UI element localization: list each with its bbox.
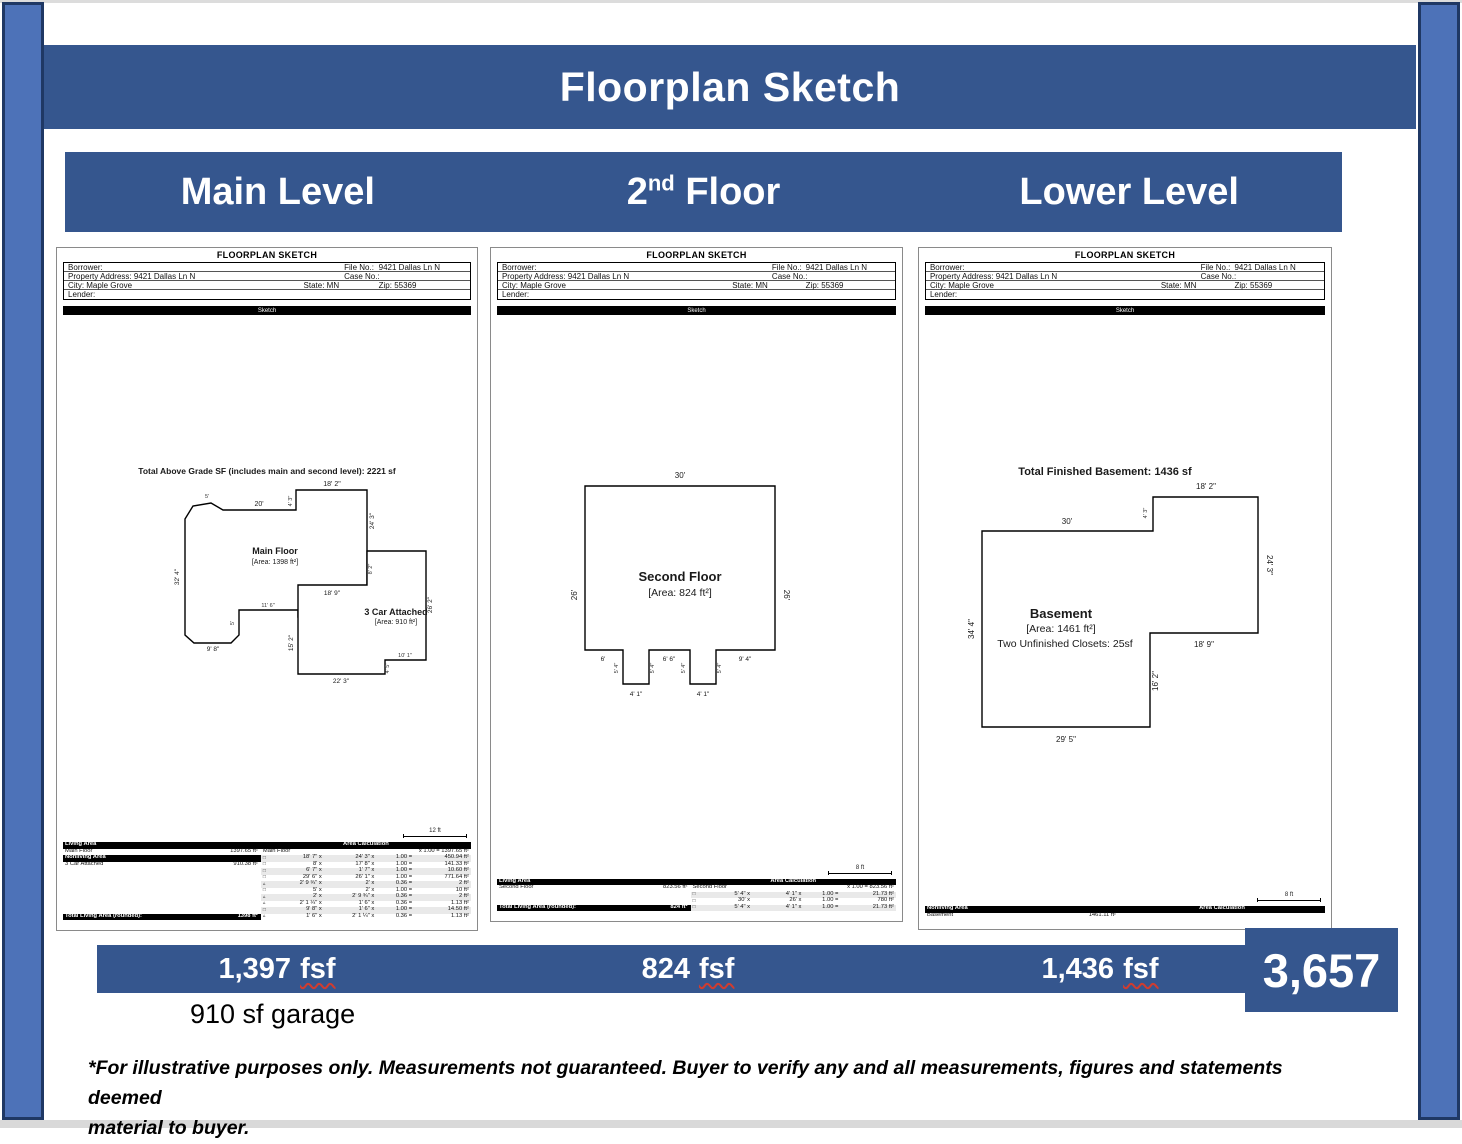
second-floor-floorplan-drawing: 30' 26' 26' Second Floor [Area: 824 ft²]… (497, 455, 897, 715)
garage-note: 910 sf garage (190, 999, 355, 1030)
svg-text:Second Floor: Second Floor (638, 569, 721, 584)
svg-text:32' 4": 32' 4" (174, 568, 181, 585)
doc-title: FLOORPLAN SKETCH (925, 250, 1325, 260)
svg-text:Main Floor: Main Floor (252, 546, 298, 556)
svg-text:5' 4": 5' 4" (681, 663, 687, 674)
checkbox-icon: □ (261, 908, 276, 913)
table-row: Basement1461.11 ft² (925, 913, 1119, 920)
total-living-area-row: Total Living Area (rounded):824 ft² (497, 905, 691, 912)
svg-text:26': 26' (570, 589, 579, 600)
sketch-section-bar: Sketch (63, 306, 471, 315)
area-calculation-table: Nonliving Area Basement1461.11 ft² Area … (925, 906, 1325, 919)
checkbox-icon: □ (691, 892, 705, 897)
sketch-section-bar: Sketch (925, 306, 1325, 315)
calc-row: □ 5' 4" x 4' 1" x 1.00 = 21.73 ft² (691, 905, 896, 912)
svg-text:4' 1": 4' 1" (630, 691, 643, 698)
lower-level-sketch-area: Total Finished Basement: 1436 sf 18' 2" … (925, 315, 1325, 919)
info-row-lender: Lender: (64, 290, 470, 299)
svg-text:11' 6": 11' 6" (261, 603, 274, 609)
svg-text:Two Unfinished Closets: 25sf: Two Unfinished Closets: 25sf (997, 638, 1132, 650)
main-level-total: 1,397fsf (218, 945, 335, 993)
svg-text:5': 5' (205, 494, 209, 500)
doc-title: FLOORPLAN SKETCH (63, 250, 471, 260)
svg-text:10' 1": 10' 1" (398, 653, 412, 659)
main-level-sketch-area: Total Above Grade SF (includes main and … (63, 315, 471, 920)
info-row-property: Property Address: 9421 Dallas Ln N Case … (926, 272, 1324, 281)
svg-text:5' 4": 5' 4" (717, 663, 723, 674)
area-calculation-table: Living Area Second Floor823.56 ft² Total… (497, 879, 896, 912)
nonliving-area-header: Nonliving Area (63, 855, 261, 862)
summary-bar: 1,397fsf 824fsf 1,436fsf (97, 945, 1245, 993)
svg-text:6': 6' (601, 656, 606, 663)
svg-text:34' 4": 34' 4" (967, 619, 976, 639)
levels-header-bar: Main Level 2nd Floor Lower Level (65, 152, 1342, 232)
second-floor-table-block: 8 ft Living Area Second Floor823.56 ft² … (497, 865, 896, 912)
svg-text:9' 8": 9' 8" (207, 646, 220, 653)
info-row-borrower: Borrower: File No.: 9421 Dallas Ln N (64, 263, 470, 272)
table-row: 3 Car Attached910.38 ft² (63, 862, 261, 869)
svg-text:[Area: 824 ft²]: [Area: 824 ft²] (648, 587, 712, 599)
disclaimer-text: *For illustrative purposes only. Measure… (88, 1053, 1328, 1144)
main-level-table-block: 12 ft Living Area Main Floor1397.65 ft² … (63, 828, 471, 920)
svg-text:9' 4": 9' 4" (739, 656, 752, 663)
table-row: Main Floor1397.65 ft² (63, 849, 261, 856)
total-living-area-row: Total Living Area (rounded):1398 ft² (63, 914, 261, 921)
svg-text:6' 6": 6' 6" (663, 656, 676, 663)
svg-text:18' 2": 18' 2" (323, 481, 341, 488)
page-title: Floorplan Sketch (560, 64, 901, 111)
checkbox-icon: ▵ (261, 914, 276, 919)
page-title-bar: Floorplan Sketch (44, 45, 1416, 129)
living-area-header: Living Area (497, 879, 691, 886)
panel-lower-level: FLOORPLAN SKETCH Borrower: File No.: 942… (918, 247, 1332, 930)
lower-level-table-block: 8 ft Nonliving Area Basement1461.11 ft² … (925, 892, 1325, 919)
info-row-lender: Lender: (498, 290, 895, 299)
svg-text:22' 3": 22' 3" (333, 678, 350, 685)
lower-level-total: 1,436fsf (1041, 945, 1158, 993)
checkbox-icon: ▵ (261, 901, 276, 906)
checkbox-icon: □ (691, 905, 705, 910)
second-floor-total: 824fsf (642, 945, 735, 993)
svg-text:30': 30' (1062, 517, 1073, 526)
info-row-city: City: Maple Grove State: MN Zip: 55369 (498, 281, 895, 290)
main-level-floorplan-drawing: Total Above Grade SF (includes main and … (63, 457, 471, 707)
property-info-table: Borrower: File No.: 9421 Dallas Ln N Pro… (63, 262, 471, 300)
svg-text:26' 2": 26' 2" (427, 596, 434, 613)
info-row-borrower: Borrower: File No.: 9421 Dallas Ln N (498, 263, 895, 272)
svg-text:Basement: Basement (1030, 606, 1093, 621)
svg-text:26': 26' (782, 590, 791, 601)
calc-rows: □ 18' 7" x 24' 3" x 1.00 = 450.94 ft² □ … (261, 855, 471, 920)
svg-text:16' 2": 16' 2" (1151, 671, 1160, 691)
panel-second-floor: FLOORPLAN SKETCH Borrower: File No.: 942… (490, 247, 903, 922)
svg-text:30': 30' (675, 471, 686, 480)
info-row-property: Property Address: 9421 Dallas Ln N Case … (498, 272, 895, 281)
checkbox-icon: □ (261, 875, 276, 880)
property-info-table: Borrower: File No.: 9421 Dallas Ln N Pro… (497, 262, 896, 300)
doc-title: FLOORPLAN SKETCH (497, 250, 896, 260)
right-blue-strip (1418, 2, 1460, 1120)
grand-total-box: 3,657 (1245, 928, 1398, 1012)
svg-text:3 Car Attached: 3 Car Attached (364, 607, 427, 617)
checkbox-icon: ▵ (261, 882, 276, 887)
info-row-city: City: Maple Grove State: MN Zip: 55369 (64, 281, 470, 290)
svg-text:4' 3": 4' 3" (1143, 508, 1149, 519)
second-floor-sketch-area: 30' 26' 26' Second Floor [Area: 824 ft²]… (497, 315, 896, 911)
svg-text:[Area: 910 ft²]: [Area: 910 ft²] (375, 619, 417, 626)
checkbox-icon: ▵ (261, 895, 276, 900)
svg-text:4' 3": 4' 3" (288, 496, 294, 507)
svg-text:[Area: 1398 ft²]: [Area: 1398 ft²] (252, 559, 298, 566)
svg-text:4' 1": 4' 1" (697, 691, 710, 698)
checkbox-icon: □ (691, 899, 705, 904)
calc-row: ▵ 1' 6" x 2' 1 ¼" x 0.36 = 1.13 ft² (261, 914, 471, 921)
second-floor-outline (585, 486, 775, 684)
checkbox-icon: □ (261, 856, 276, 861)
svg-text:5': 5' (230, 621, 236, 625)
info-row-borrower: Borrower: File No.: 9421 Dallas Ln N (926, 263, 1324, 272)
info-row-property: Property Address: 9421 Dallas Ln N Case … (64, 272, 470, 281)
info-row-city: City: Maple Grove State: MN Zip: 55369 (926, 281, 1324, 290)
calc-rows: □ 5' 4" x 4' 1" x 1.00 = 21.73 ft² □ 30'… (691, 892, 896, 912)
area-calculation-table: Living Area Main Floor1397.65 ft² Nonliv… (63, 842, 471, 920)
table-row: Second Floor823.56 ft² (497, 885, 691, 892)
panel-main-level: FLOORPLAN SKETCH Borrower: File No.: 942… (56, 247, 478, 931)
level-header-second: 2nd Floor (491, 152, 917, 232)
svg-text:24' 3": 24' 3" (1265, 555, 1274, 575)
level-header-main: Main Level (65, 152, 491, 232)
level-header-lower: Lower Level (916, 152, 1342, 232)
svg-text:[Area: 1461 ft²]: [Area: 1461 ft²] (1026, 623, 1096, 635)
svg-text:18' 9": 18' 9" (1194, 640, 1214, 649)
svg-text:4' 5": 4' 5" (385, 663, 391, 674)
superscript-nd: nd (648, 170, 675, 195)
scale-ruler: 8 ft (1257, 892, 1321, 902)
info-row-lender: Lender: (926, 290, 1324, 299)
checkbox-icon: □ (261, 869, 276, 874)
svg-text:18' 9": 18' 9" (324, 590, 341, 597)
basement-outline (982, 497, 1258, 727)
scale-ruler: 8 ft (828, 865, 892, 875)
svg-text:18' 2": 18' 2" (1196, 482, 1216, 491)
svg-text:15' 2": 15' 2" (288, 634, 295, 651)
checkbox-icon: □ (261, 888, 276, 893)
basement-floorplan-drawing: Total Finished Basement: 1436 sf 18' 2" … (925, 455, 1325, 755)
scale-ruler: 12 ft (403, 828, 467, 838)
checkbox-icon: □ (261, 862, 276, 867)
sketch-section-bar: Sketch (497, 306, 896, 315)
svg-text:29' 5": 29' 5" (1056, 735, 1076, 744)
svg-text:Total Above Grade SF (includes: Total Above Grade SF (includes main and … (138, 466, 396, 476)
svg-text:5' 4": 5' 4" (614, 663, 620, 674)
svg-text:Total Finished Basement: 1436: Total Finished Basement: 1436 sf (1018, 466, 1192, 478)
svg-text:20': 20' (254, 501, 263, 508)
svg-text:24' 3": 24' 3" (369, 512, 376, 529)
property-info-table: Borrower: File No.: 9421 Dallas Ln N Pro… (925, 262, 1325, 300)
left-blue-strip (2, 2, 44, 1120)
top-border-line (0, 0, 1462, 3)
svg-text:8' 2": 8' 2" (368, 564, 374, 575)
svg-text:5' 4": 5' 4" (650, 663, 656, 674)
